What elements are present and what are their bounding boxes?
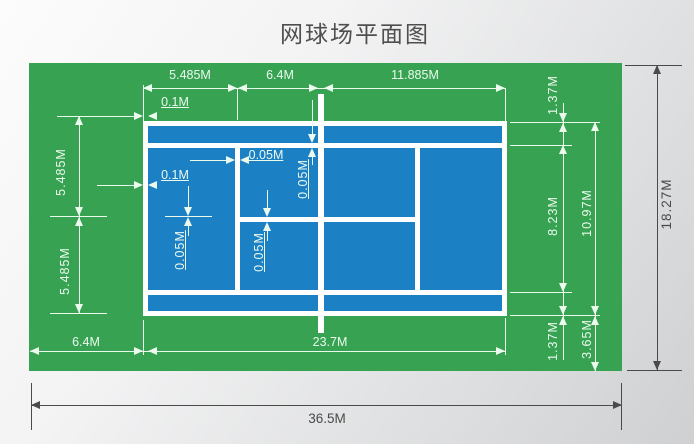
dim-leader bbox=[190, 160, 228, 161]
dim-label-alley-top: 1.37M bbox=[547, 55, 563, 135]
dim-leader bbox=[188, 186, 189, 208]
tennis-court-diagram: 网球场平面图 5.485M 6.4M 11.885M 5.485M 5.485M… bbox=[0, 0, 694, 444]
dim-arrow bbox=[591, 122, 599, 131]
dim-leader bbox=[100, 116, 136, 117]
dim-arrow bbox=[75, 304, 83, 313]
singles-sideline-bottom bbox=[143, 290, 507, 295]
dim-arrow bbox=[134, 181, 143, 189]
note-centre-mark-width: 0.05M bbox=[174, 210, 190, 290]
dim-arrow bbox=[496, 84, 505, 92]
dim-line bbox=[657, 65, 658, 370]
dim-leader bbox=[312, 100, 313, 134]
dim-leader bbox=[267, 190, 268, 210]
dim-label-doubles-width: 10.97M bbox=[581, 173, 597, 253]
dim-line bbox=[323, 88, 505, 89]
dim-arrow bbox=[228, 84, 237, 92]
note-sideline-width: 0.1M bbox=[154, 169, 196, 183]
dim-label-baseline-to-service: 5.485M bbox=[158, 69, 222, 83]
note-centre-service-line-width: 0.05M bbox=[253, 212, 269, 292]
dim-arrow bbox=[613, 401, 622, 409]
dim-arrow bbox=[496, 347, 505, 355]
net-line bbox=[318, 94, 324, 333]
dim-arrow bbox=[75, 116, 83, 125]
dim-label-alley-bottom: 1.37M bbox=[547, 301, 563, 381]
note-service-line-width: 0.05M bbox=[242, 149, 290, 163]
dim-label-upper-half-width: 5.485M bbox=[55, 132, 71, 212]
dim-arrow bbox=[559, 145, 567, 154]
dim-line bbox=[30, 351, 505, 352]
dim-line bbox=[143, 88, 237, 89]
dim-arrow bbox=[309, 84, 318, 92]
dim-leader bbox=[97, 185, 136, 186]
dim-label-total-height: 18.27M bbox=[660, 164, 676, 244]
dim-label-court-length: 23.7M bbox=[300, 336, 360, 350]
dim-label-side-margin: 3.65M bbox=[581, 299, 597, 379]
dim-ext-line bbox=[237, 88, 238, 120]
dim-line bbox=[31, 405, 622, 406]
dim-arrow bbox=[134, 347, 143, 355]
dim-arrow bbox=[559, 283, 567, 292]
dim-arrow bbox=[75, 217, 83, 226]
dim-arrow bbox=[134, 112, 143, 120]
dim-arrow bbox=[653, 361, 661, 370]
dim-label-service-to-net: 6.4M bbox=[252, 69, 308, 83]
dim-arrow bbox=[30, 347, 39, 355]
dim-label-net-to-baseline: 11.885M bbox=[380, 69, 450, 83]
note-singles-sideline-width: 0.05M bbox=[297, 139, 313, 219]
dim-arrow bbox=[143, 84, 152, 92]
dim-ext-line bbox=[143, 320, 144, 355]
dim-label-end-margin: 6.4M bbox=[58, 336, 114, 350]
dim-tick bbox=[627, 370, 682, 371]
dim-arrow bbox=[238, 84, 247, 92]
dim-label-total-length: 36.5M bbox=[294, 412, 360, 427]
dim-arrow bbox=[226, 156, 235, 164]
singles-sideline-top bbox=[143, 143, 507, 148]
dim-ext-line bbox=[505, 88, 506, 121]
dim-arrow bbox=[148, 112, 157, 120]
dim-arrow bbox=[148, 347, 157, 355]
dim-arrow bbox=[75, 207, 83, 216]
note-baseline-width: 0.1M bbox=[154, 96, 196, 110]
dim-arrow bbox=[31, 401, 40, 409]
dim-arrow bbox=[324, 84, 333, 92]
dim-label-singles-width: 8.23M bbox=[547, 176, 563, 256]
dim-ext-line bbox=[505, 318, 506, 355]
page-title: 网球场平面图 bbox=[0, 15, 694, 49]
dim-label-lower-half-width: 5.485M bbox=[59, 231, 75, 311]
dim-arrow bbox=[653, 65, 661, 74]
